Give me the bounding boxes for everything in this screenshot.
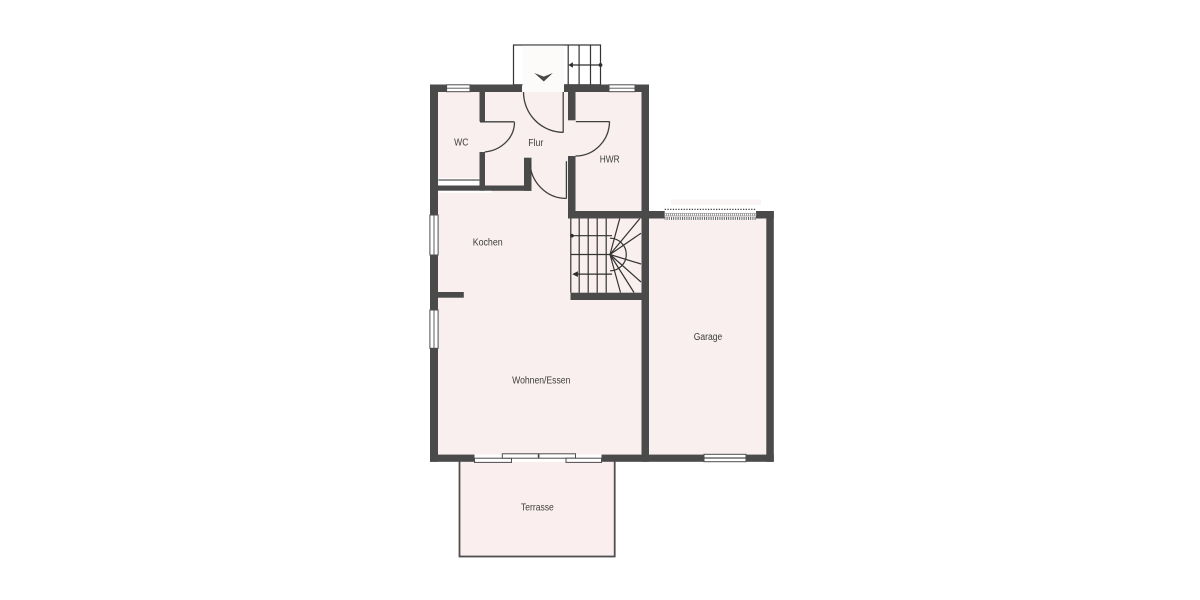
svg-text:HWR: HWR	[600, 154, 620, 165]
svg-text:WC: WC	[454, 138, 468, 149]
svg-text:Flur: Flur	[528, 138, 544, 149]
svg-text:Terrasse: Terrasse	[521, 502, 554, 513]
svg-text:Wohnen/Essen: Wohnen/Essen	[512, 375, 570, 386]
svg-text:Garage: Garage	[694, 332, 723, 343]
svg-text:Kochen: Kochen	[473, 238, 503, 249]
